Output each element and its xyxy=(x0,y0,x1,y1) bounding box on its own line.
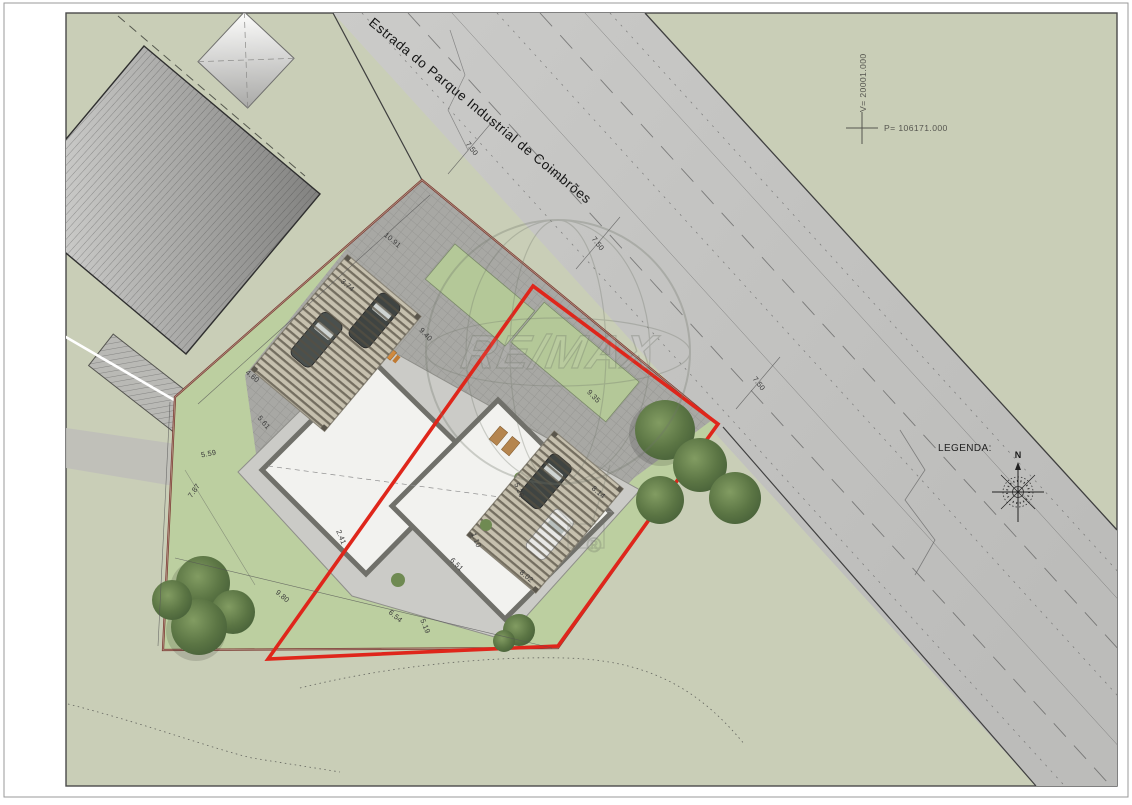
p-coordinate-label: P= 106171.000 xyxy=(884,123,948,133)
compass-north-label: N xyxy=(1015,450,1022,460)
shrub-small-1 xyxy=(391,573,405,587)
site-plan-page: RE/MAX ® Estrada do Parque Industrial de… xyxy=(0,0,1132,800)
legend-title: LEGENDA: xyxy=(938,443,992,454)
site-plan-map: RE/MAX ® Estrada do Parque Industrial de… xyxy=(0,0,1132,800)
shrub-small-2 xyxy=(480,519,492,531)
v-coordinate-label: V= 20001.000 xyxy=(858,53,868,112)
watermark-registered: ® xyxy=(587,535,602,557)
watermark-text: RE/MAX xyxy=(458,326,662,379)
